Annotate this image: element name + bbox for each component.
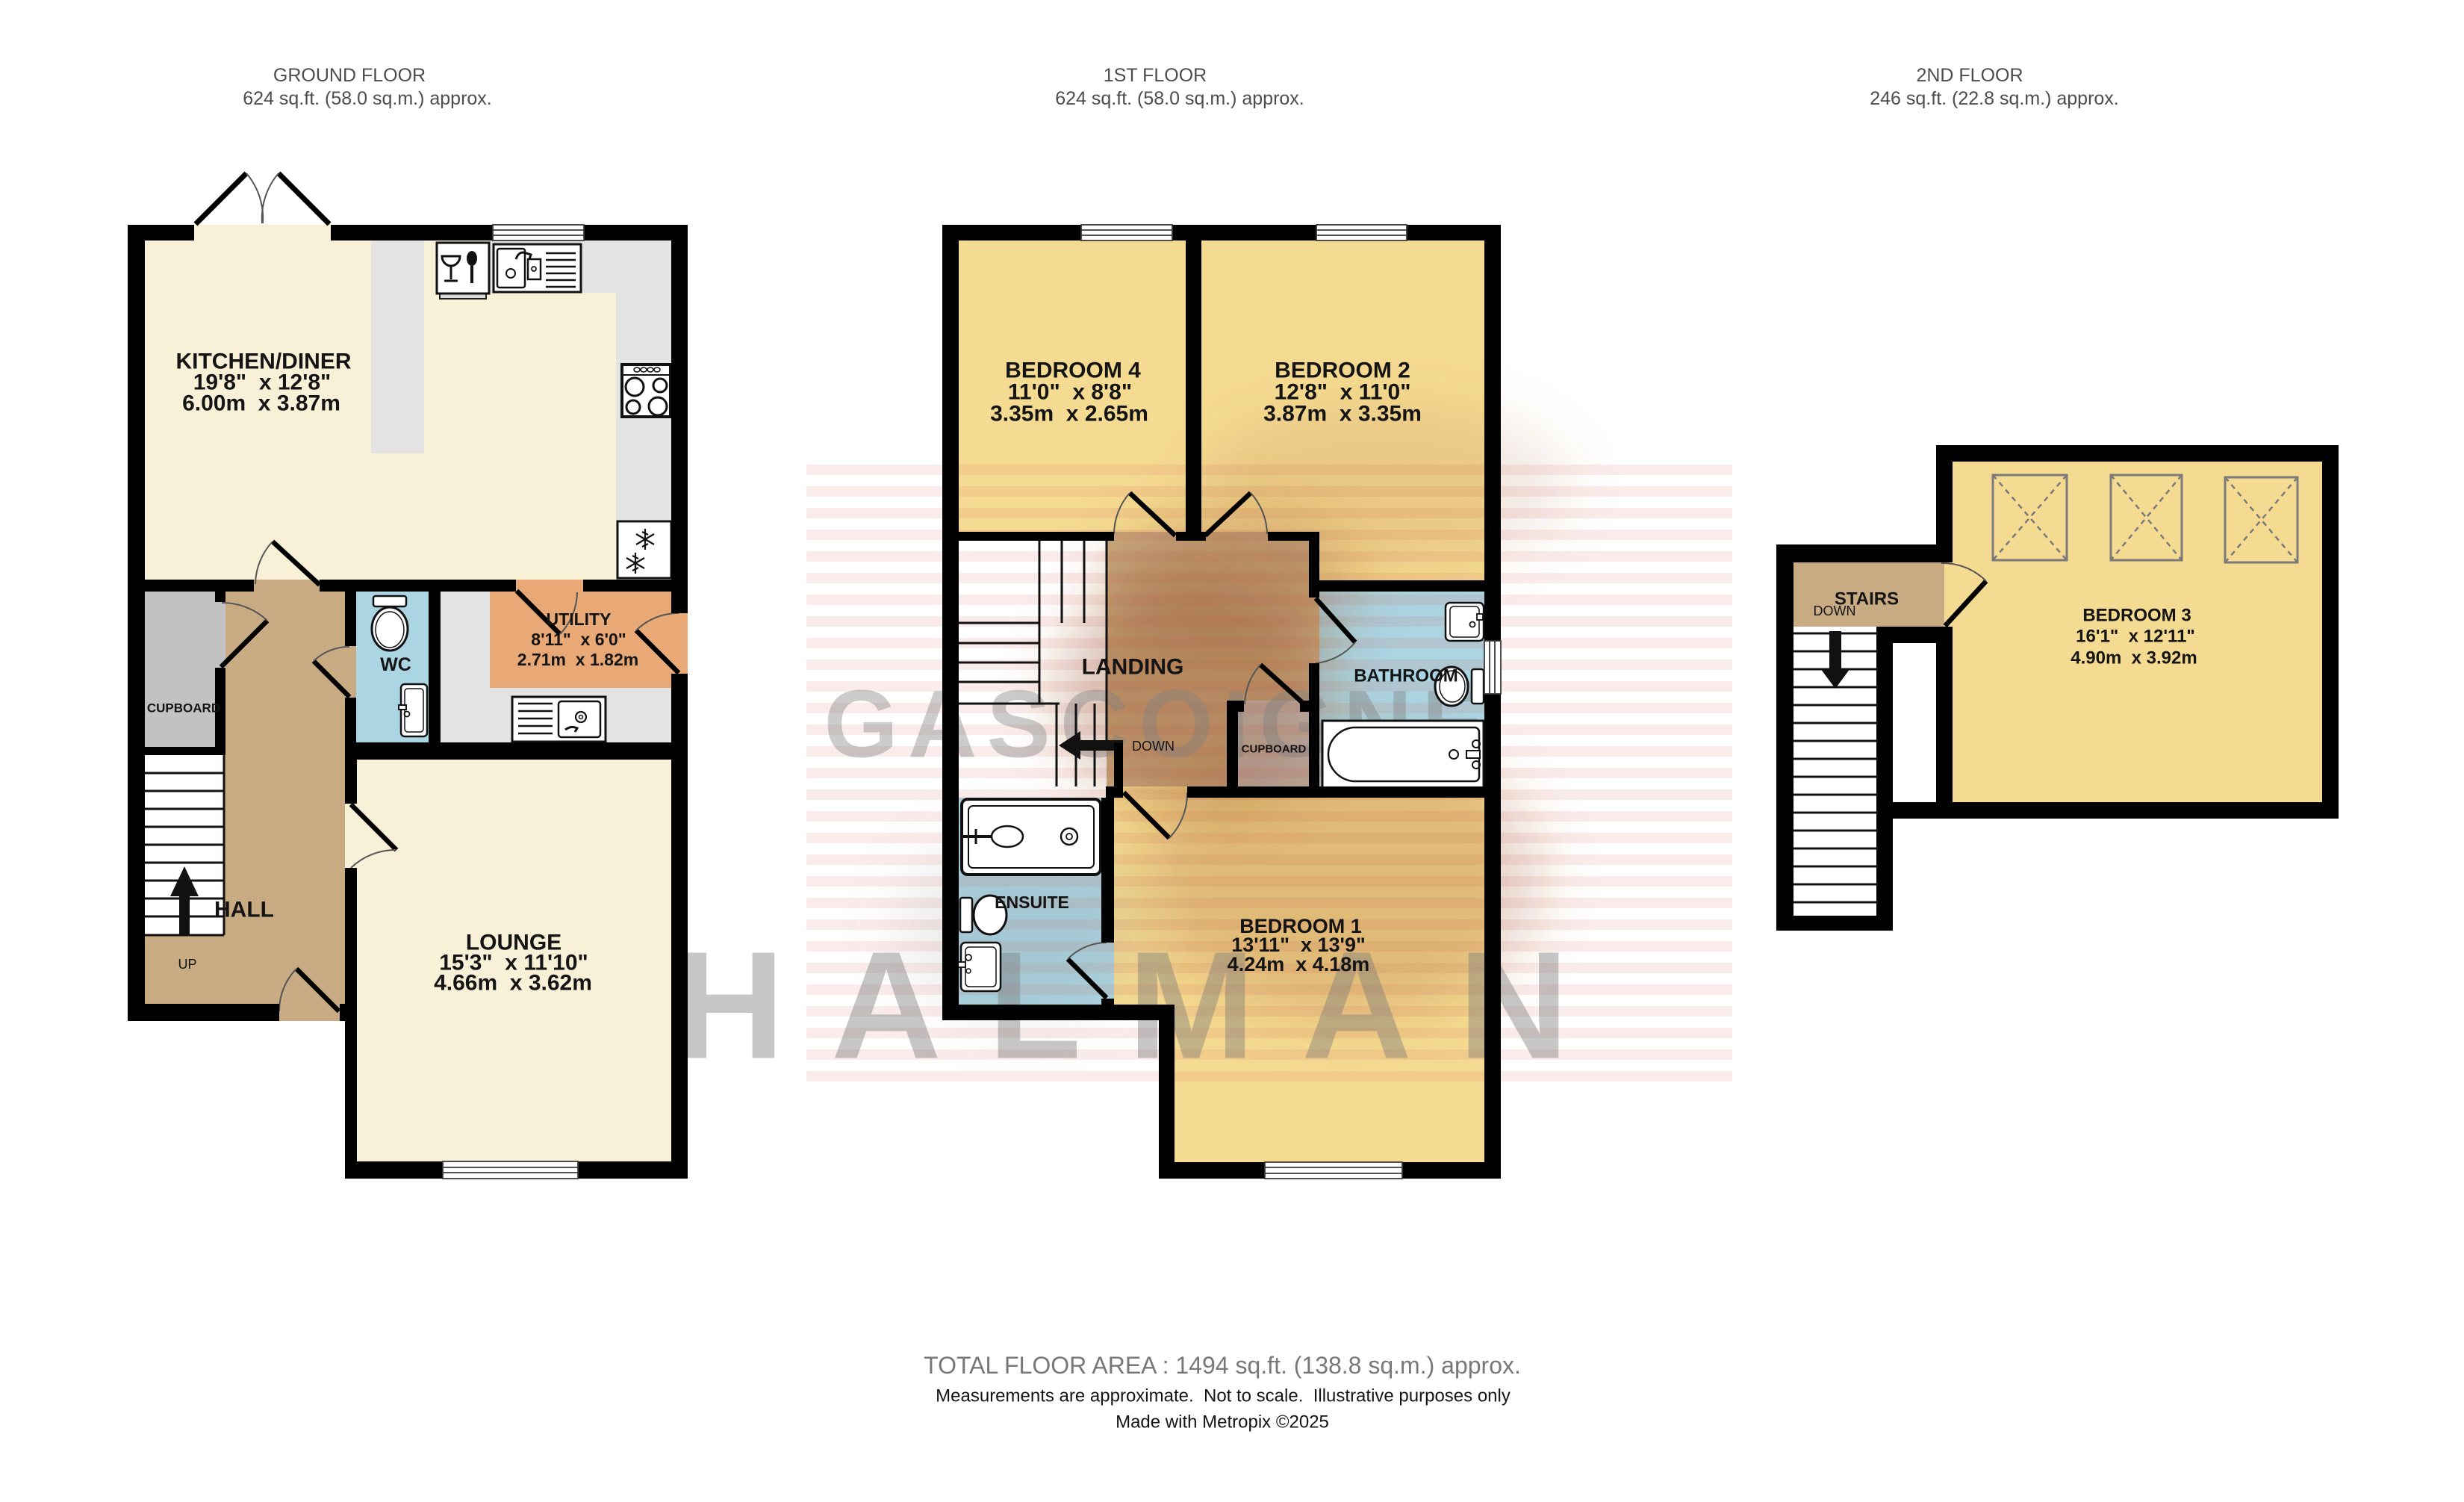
svg-text:BATHROOM: BATHROOM — [1354, 666, 1458, 686]
svg-text:4.90m x 3.92m: 4.90m x 3.92m — [2071, 648, 2197, 668]
svg-text:UTILITY: UTILITY — [547, 609, 612, 629]
svg-text:ENSUITE: ENSUITE — [995, 893, 1069, 912]
svg-text:2ND FLOOR: 2ND FLOOR — [1916, 65, 2023, 86]
svg-text:DOWN: DOWN — [1814, 603, 1856, 618]
svg-text:GROUND FLOOR: GROUND FLOOR — [273, 65, 426, 86]
svg-text:Measurements are approximate.: Measurements are approximate. Not to sca… — [936, 1386, 1511, 1406]
svg-text:16'1" x 12'11": 16'1" x 12'11" — [2076, 627, 2195, 647]
svg-text:1ST FLOOR: 1ST FLOOR — [1104, 65, 1207, 86]
svg-text:8'11" x 6'0": 8'11" x 6'0" — [531, 630, 626, 649]
svg-text:BEDROOM 3: BEDROOM 3 — [2082, 606, 2191, 626]
svg-text:624 sq.ft. (58.0 sq.m.) approx: 624 sq.ft. (58.0 sq.m.) approx. — [243, 88, 492, 109]
svg-text:CUPBOARD: CUPBOARD — [147, 701, 220, 716]
svg-text:TOTAL FLOOR AREA : 1494 sq.ft.: TOTAL FLOOR AREA : 1494 sq.ft. (138.8 sq… — [924, 1352, 1521, 1379]
svg-text:2.71m x 1.82m: 2.71m x 1.82m — [517, 650, 638, 669]
svg-text:LANDING: LANDING — [1082, 655, 1184, 680]
svg-text:HALL: HALL — [214, 898, 274, 922]
svg-text:CUPBOARD: CUPBOARD — [1242, 743, 1307, 756]
svg-text:3.87m x 3.35m: 3.87m x 3.35m — [1263, 402, 1422, 426]
svg-text:246 sq.ft. (22.8 sq.m.) approx: 246 sq.ft. (22.8 sq.m.) approx. — [1870, 88, 2119, 109]
svg-text:6.00m x 3.87m: 6.00m x 3.87m — [182, 391, 340, 416]
svg-text:4.24m x 4.18m: 4.24m x 4.18m — [1228, 953, 1370, 975]
svg-text:624 sq.ft. (58.0 sq.m.) approx: 624 sq.ft. (58.0 sq.m.) approx. — [1055, 88, 1304, 109]
svg-text:UP: UP — [178, 957, 196, 972]
svg-text:3.35m x 2.65m: 3.35m x 2.65m — [990, 402, 1148, 426]
svg-text:DOWN: DOWN — [1132, 739, 1175, 754]
svg-text:4.66m x 3.62m: 4.66m x 3.62m — [434, 971, 592, 996]
svg-text:Made with Metropix ©2025: Made with Metropix ©2025 — [1116, 1412, 1329, 1433]
svg-text:WC: WC — [380, 654, 411, 675]
